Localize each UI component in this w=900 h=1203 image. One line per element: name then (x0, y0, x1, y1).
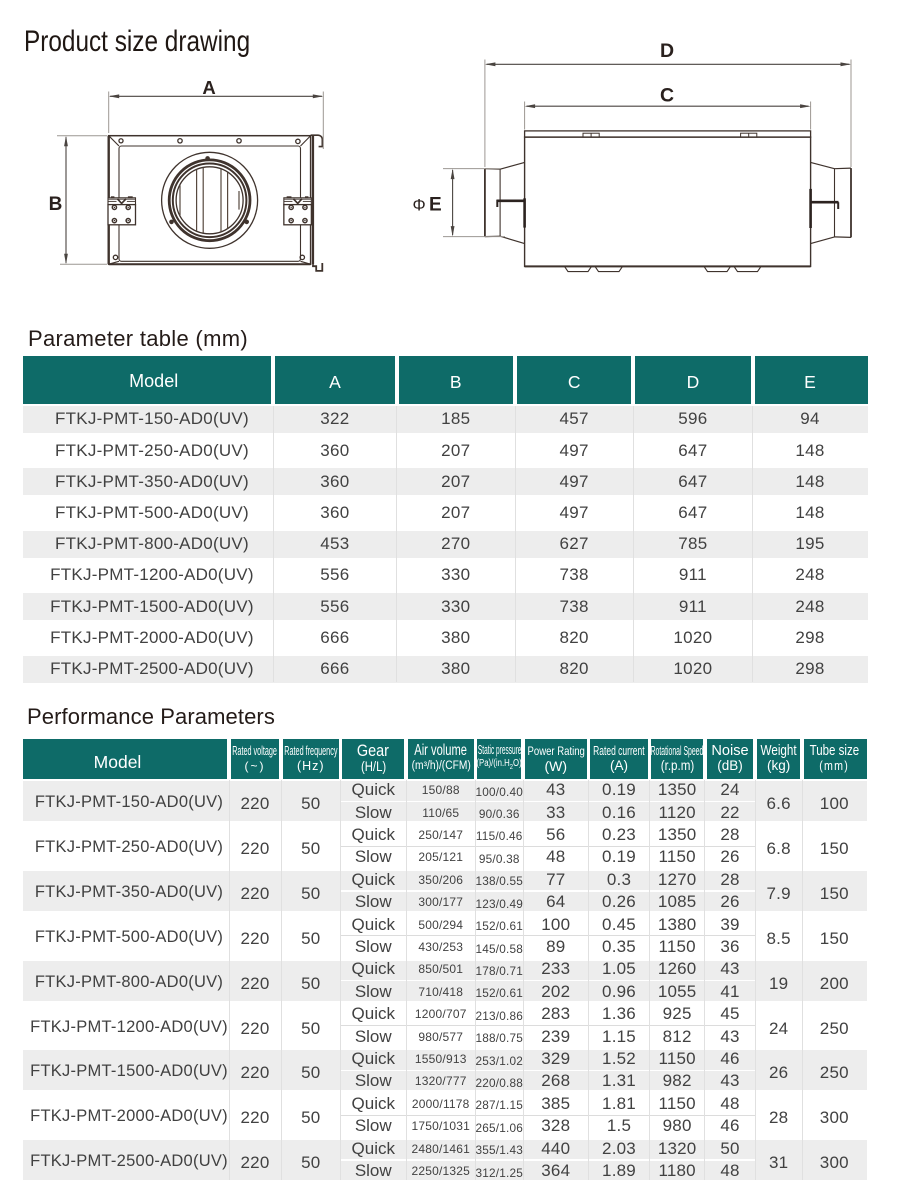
svg-text:Φ: Φ (413, 197, 426, 215)
svg-text:C: C (660, 85, 674, 107)
svg-text:A: A (202, 77, 215, 98)
svg-text:D: D (660, 40, 674, 62)
svg-text:E: E (429, 195, 442, 216)
svg-text:B: B (49, 194, 63, 215)
